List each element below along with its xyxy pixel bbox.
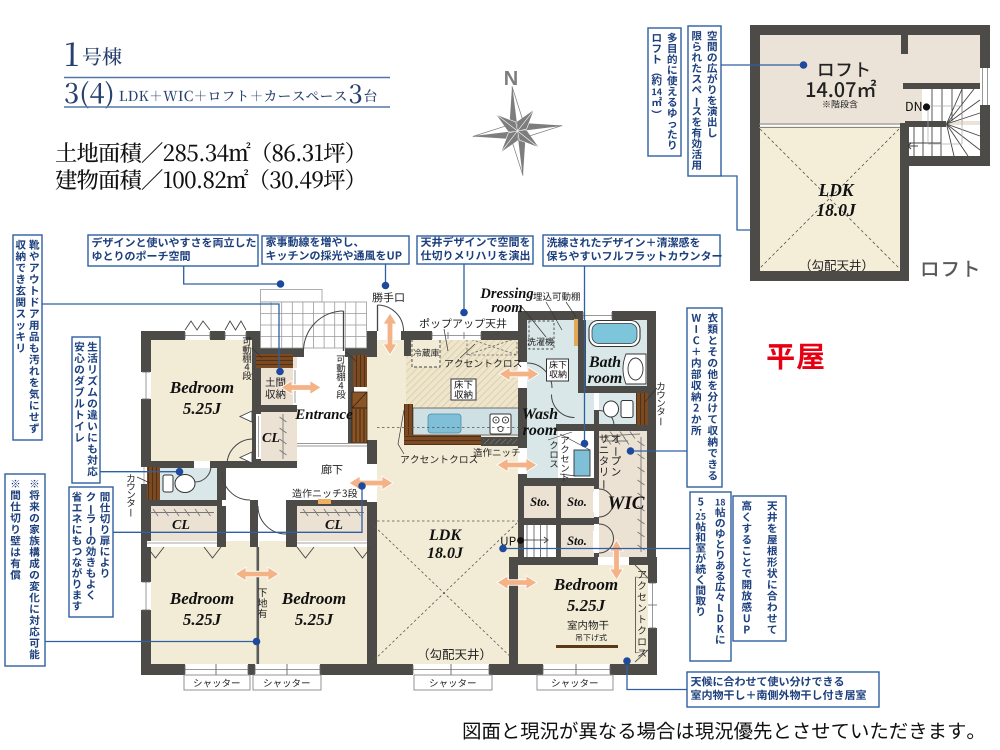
svg-text:Sto.: Sto.	[530, 495, 550, 509]
svg-text:Bedroom: Bedroom	[553, 575, 618, 594]
svg-text:room: room	[523, 422, 558, 439]
svg-text:WIC: WIC	[608, 493, 645, 514]
svg-text:Bath: Bath	[588, 354, 621, 371]
svg-text:Bedroom: Bedroom	[169, 589, 234, 608]
svg-text:Entrance: Entrance	[294, 407, 353, 423]
svg-text:LDK: LDK	[818, 180, 855, 200]
svg-text:18.0J: 18.0J	[427, 545, 464, 562]
svg-text:CL: CL	[325, 518, 343, 533]
svg-text:CL: CL	[172, 518, 190, 533]
svg-text:5.25J: 5.25J	[183, 399, 222, 418]
svg-text:Wash: Wash	[522, 406, 558, 423]
svg-text:room: room	[491, 300, 522, 316]
svg-text:Bedroom: Bedroom	[281, 589, 346, 608]
svg-text:CL: CL	[262, 431, 280, 446]
svg-text:5.25J: 5.25J	[295, 610, 334, 629]
svg-text:5.25J: 5.25J	[567, 596, 606, 615]
svg-text:Sto.: Sto.	[567, 534, 587, 548]
svg-text:N: N	[504, 68, 518, 90]
svg-text:18.0J: 18.0J	[816, 200, 857, 220]
svg-text:room: room	[588, 370, 623, 387]
svg-text:LDK: LDK	[428, 527, 462, 544]
svg-text:5.25J: 5.25J	[183, 610, 222, 629]
svg-text:Bedroom: Bedroom	[169, 378, 234, 397]
svg-text:Sto.: Sto.	[567, 495, 587, 509]
